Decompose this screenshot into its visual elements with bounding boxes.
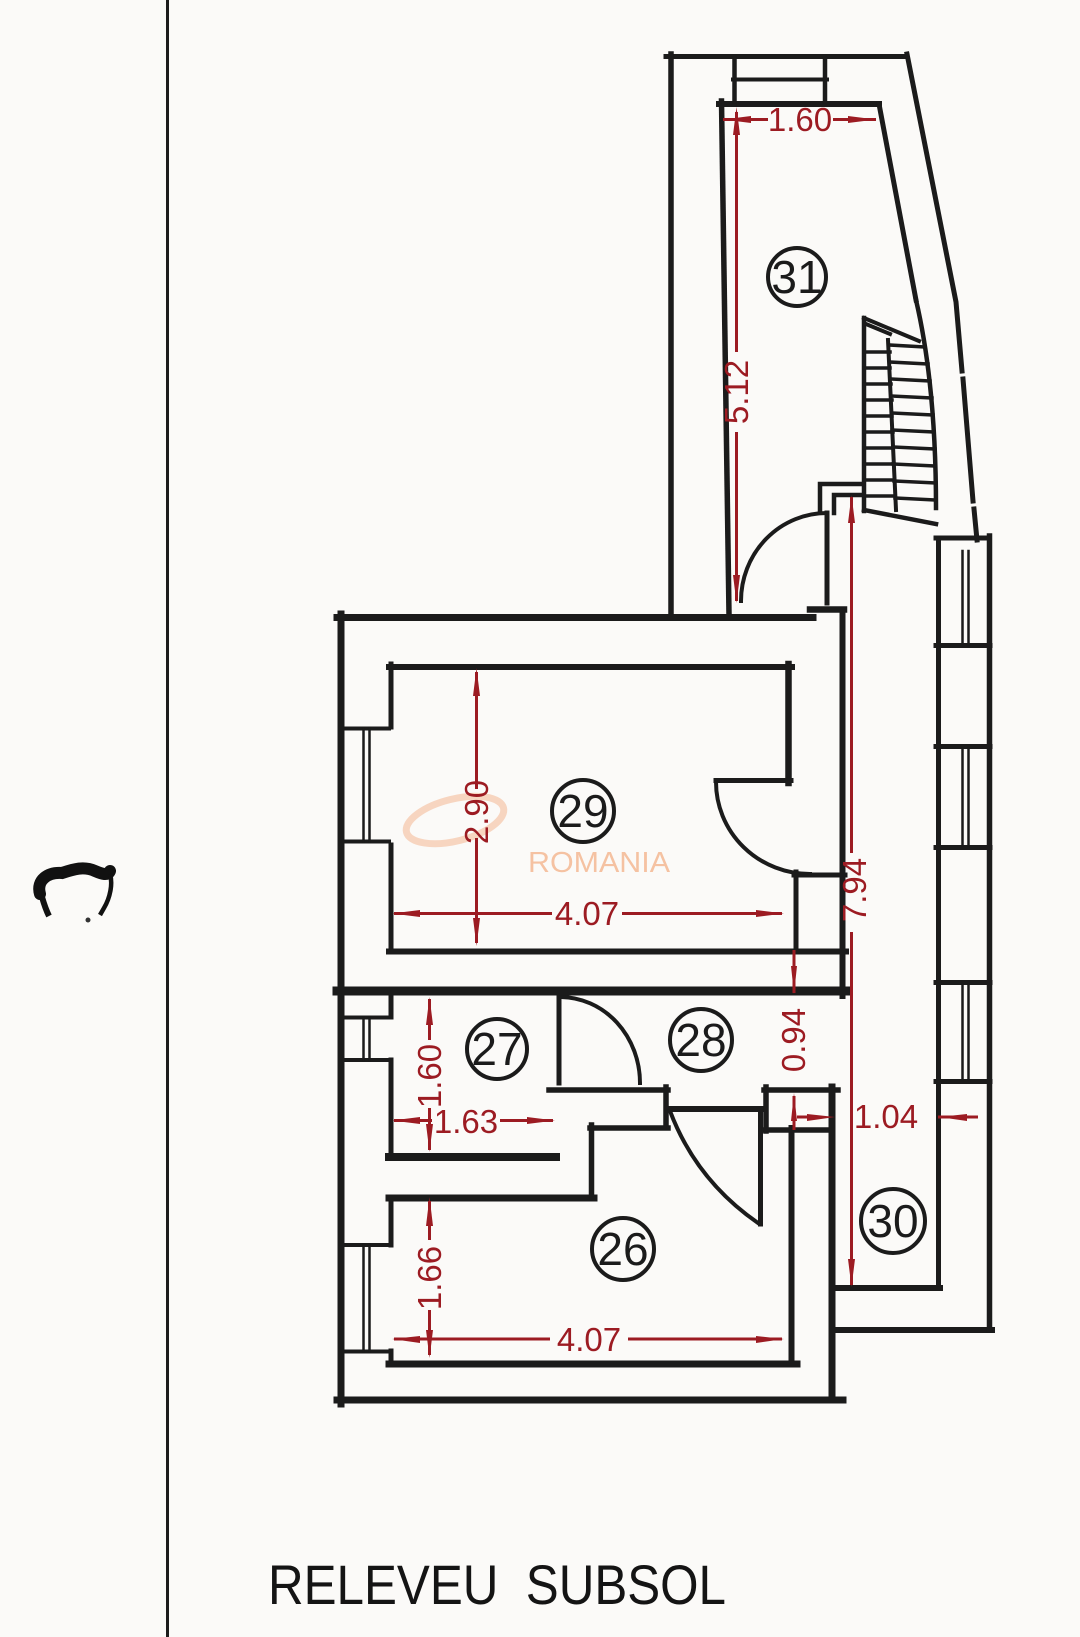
svg-text:7.94: 7.94 [836, 858, 873, 922]
svg-text:31: 31 [771, 251, 822, 303]
svg-text:30: 30 [867, 1195, 918, 1247]
svg-text:5.12: 5.12 [718, 360, 755, 424]
svg-text:4.07: 4.07 [557, 1321, 621, 1358]
svg-text:4.07: 4.07 [555, 895, 619, 932]
svg-text:ROMANIA: ROMANIA [528, 847, 671, 879]
svg-text:2.90: 2.90 [458, 780, 495, 844]
svg-text:1.60: 1.60 [411, 1044, 448, 1108]
svg-text:RELEVEU SUBSOL: RELEVEU SUBSOL [268, 1553, 726, 1616]
svg-text:1.04: 1.04 [854, 1098, 918, 1135]
svg-text:0.94: 0.94 [775, 1008, 812, 1072]
svg-text:26: 26 [597, 1223, 648, 1275]
svg-text:1.66: 1.66 [411, 1246, 448, 1310]
svg-text:1.63: 1.63 [434, 1103, 498, 1140]
svg-text:1.60: 1.60 [768, 101, 832, 138]
svg-text:28: 28 [675, 1014, 726, 1066]
svg-text:29: 29 [557, 785, 608, 837]
svg-text:27: 27 [471, 1023, 522, 1075]
